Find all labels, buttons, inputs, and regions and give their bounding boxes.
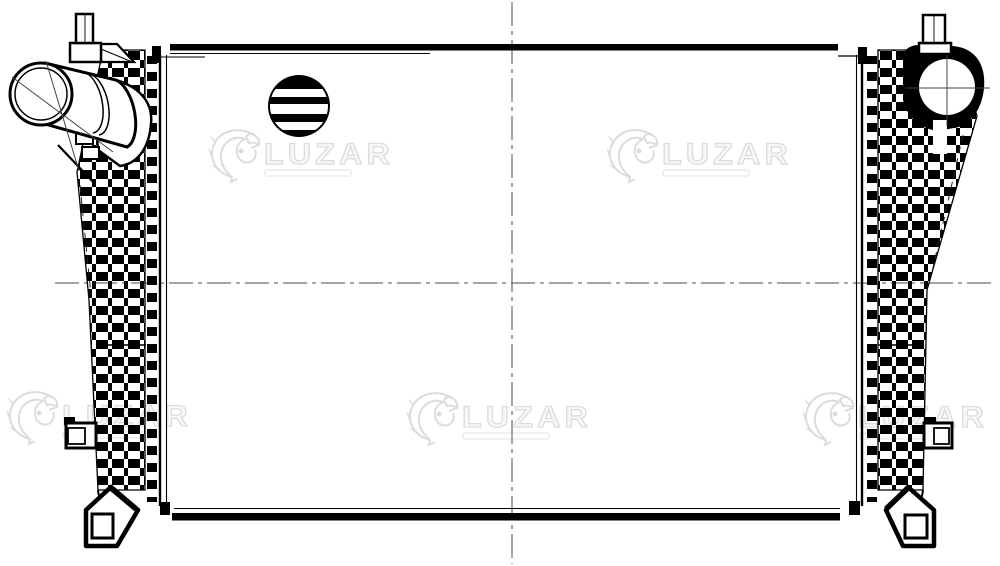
watermark-brand-text: LUZAR (662, 138, 792, 171)
left-foot-hole (92, 514, 113, 538)
core-top-edge (170, 44, 838, 51)
port-relief-slot (933, 120, 947, 154)
pipe-clamp-block (82, 147, 99, 159)
mounting-pin-base-left (70, 43, 101, 62)
mounting-pin-left (76, 14, 93, 43)
drawing-canvas: LUZAR LUZAR LUZAR LUZAR LUZAR (0, 0, 1000, 566)
right-tab-inner (934, 428, 949, 444)
watermark-brand-text: LUZAR (462, 401, 592, 434)
right-tank-teeth (867, 56, 877, 502)
watermark-brand-text: LUZAR (264, 138, 394, 171)
core-bottom-edge (172, 513, 840, 521)
left-tab-inner (68, 428, 85, 444)
core-corner-step (160, 502, 170, 515)
intercooler-technical-drawing: LUZAR LUZAR LUZAR LUZAR LUZAR (0, 0, 1000, 566)
core-corner-step (858, 47, 867, 64)
mounting-pin-base-right (919, 43, 951, 54)
right-foot-hole (905, 515, 927, 538)
core-corner-step (849, 501, 860, 515)
